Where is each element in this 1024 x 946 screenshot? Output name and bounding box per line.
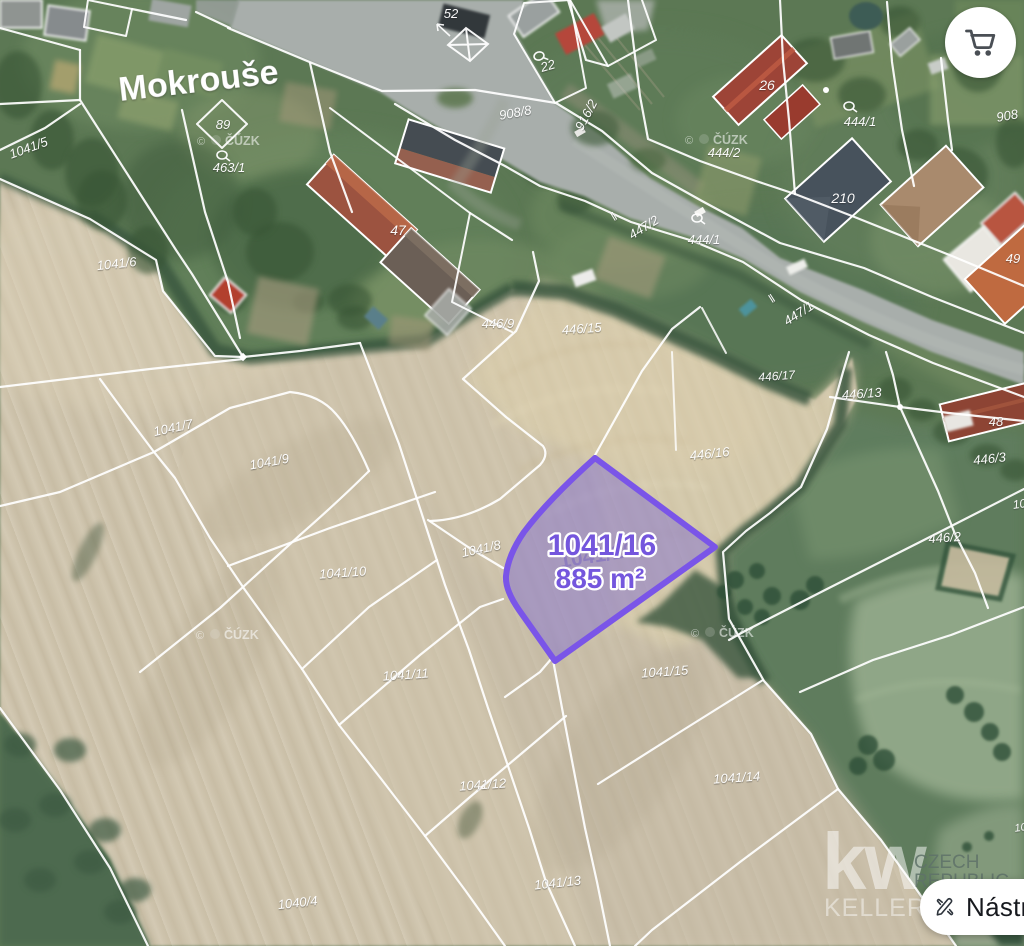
svg-text:446/2: 446/2 — [928, 529, 962, 546]
svg-text:kw: kw — [822, 817, 927, 906]
svg-text:463/1: 463/1 — [213, 160, 246, 175]
svg-text:446/9: 446/9 — [482, 316, 515, 331]
svg-text:10: 10 — [1012, 496, 1024, 512]
svg-text:©: © — [685, 135, 693, 147]
svg-text:©: © — [691, 628, 699, 640]
svg-text:444/2: 444/2 — [708, 145, 741, 160]
svg-text:446/13: 446/13 — [841, 385, 882, 403]
svg-text:210: 210 — [830, 190, 855, 206]
svg-text:©: © — [197, 136, 205, 148]
svg-text:52: 52 — [444, 6, 459, 21]
svg-text:10: 10 — [1014, 821, 1024, 835]
svg-text:444/1: 444/1 — [844, 114, 877, 129]
svg-text:446/17: 446/17 — [758, 368, 797, 385]
svg-text:89: 89 — [216, 117, 230, 132]
svg-text:ČÚZK: ČÚZK — [719, 625, 754, 640]
svg-text:©: © — [196, 630, 204, 642]
svg-text:48: 48 — [989, 414, 1004, 429]
svg-text:1041/16: 1041/16 — [548, 529, 656, 562]
svg-text:ČÚZK: ČÚZK — [225, 133, 260, 148]
svg-text:47: 47 — [390, 222, 407, 238]
svg-text:ČÚZK: ČÚZK — [713, 132, 748, 147]
svg-text:885 m²: 885 m² — [556, 563, 645, 594]
svg-text:CZECH: CZECH — [914, 852, 979, 873]
svg-text:ČÚZK: ČÚZK — [224, 627, 259, 642]
svg-text:1041/11: 1041/11 — [382, 665, 429, 683]
svg-text:49: 49 — [1006, 251, 1020, 266]
svg-text:26: 26 — [758, 77, 775, 93]
svg-text:444/1: 444/1 — [688, 232, 721, 247]
svg-text:446/15: 446/15 — [561, 320, 602, 338]
